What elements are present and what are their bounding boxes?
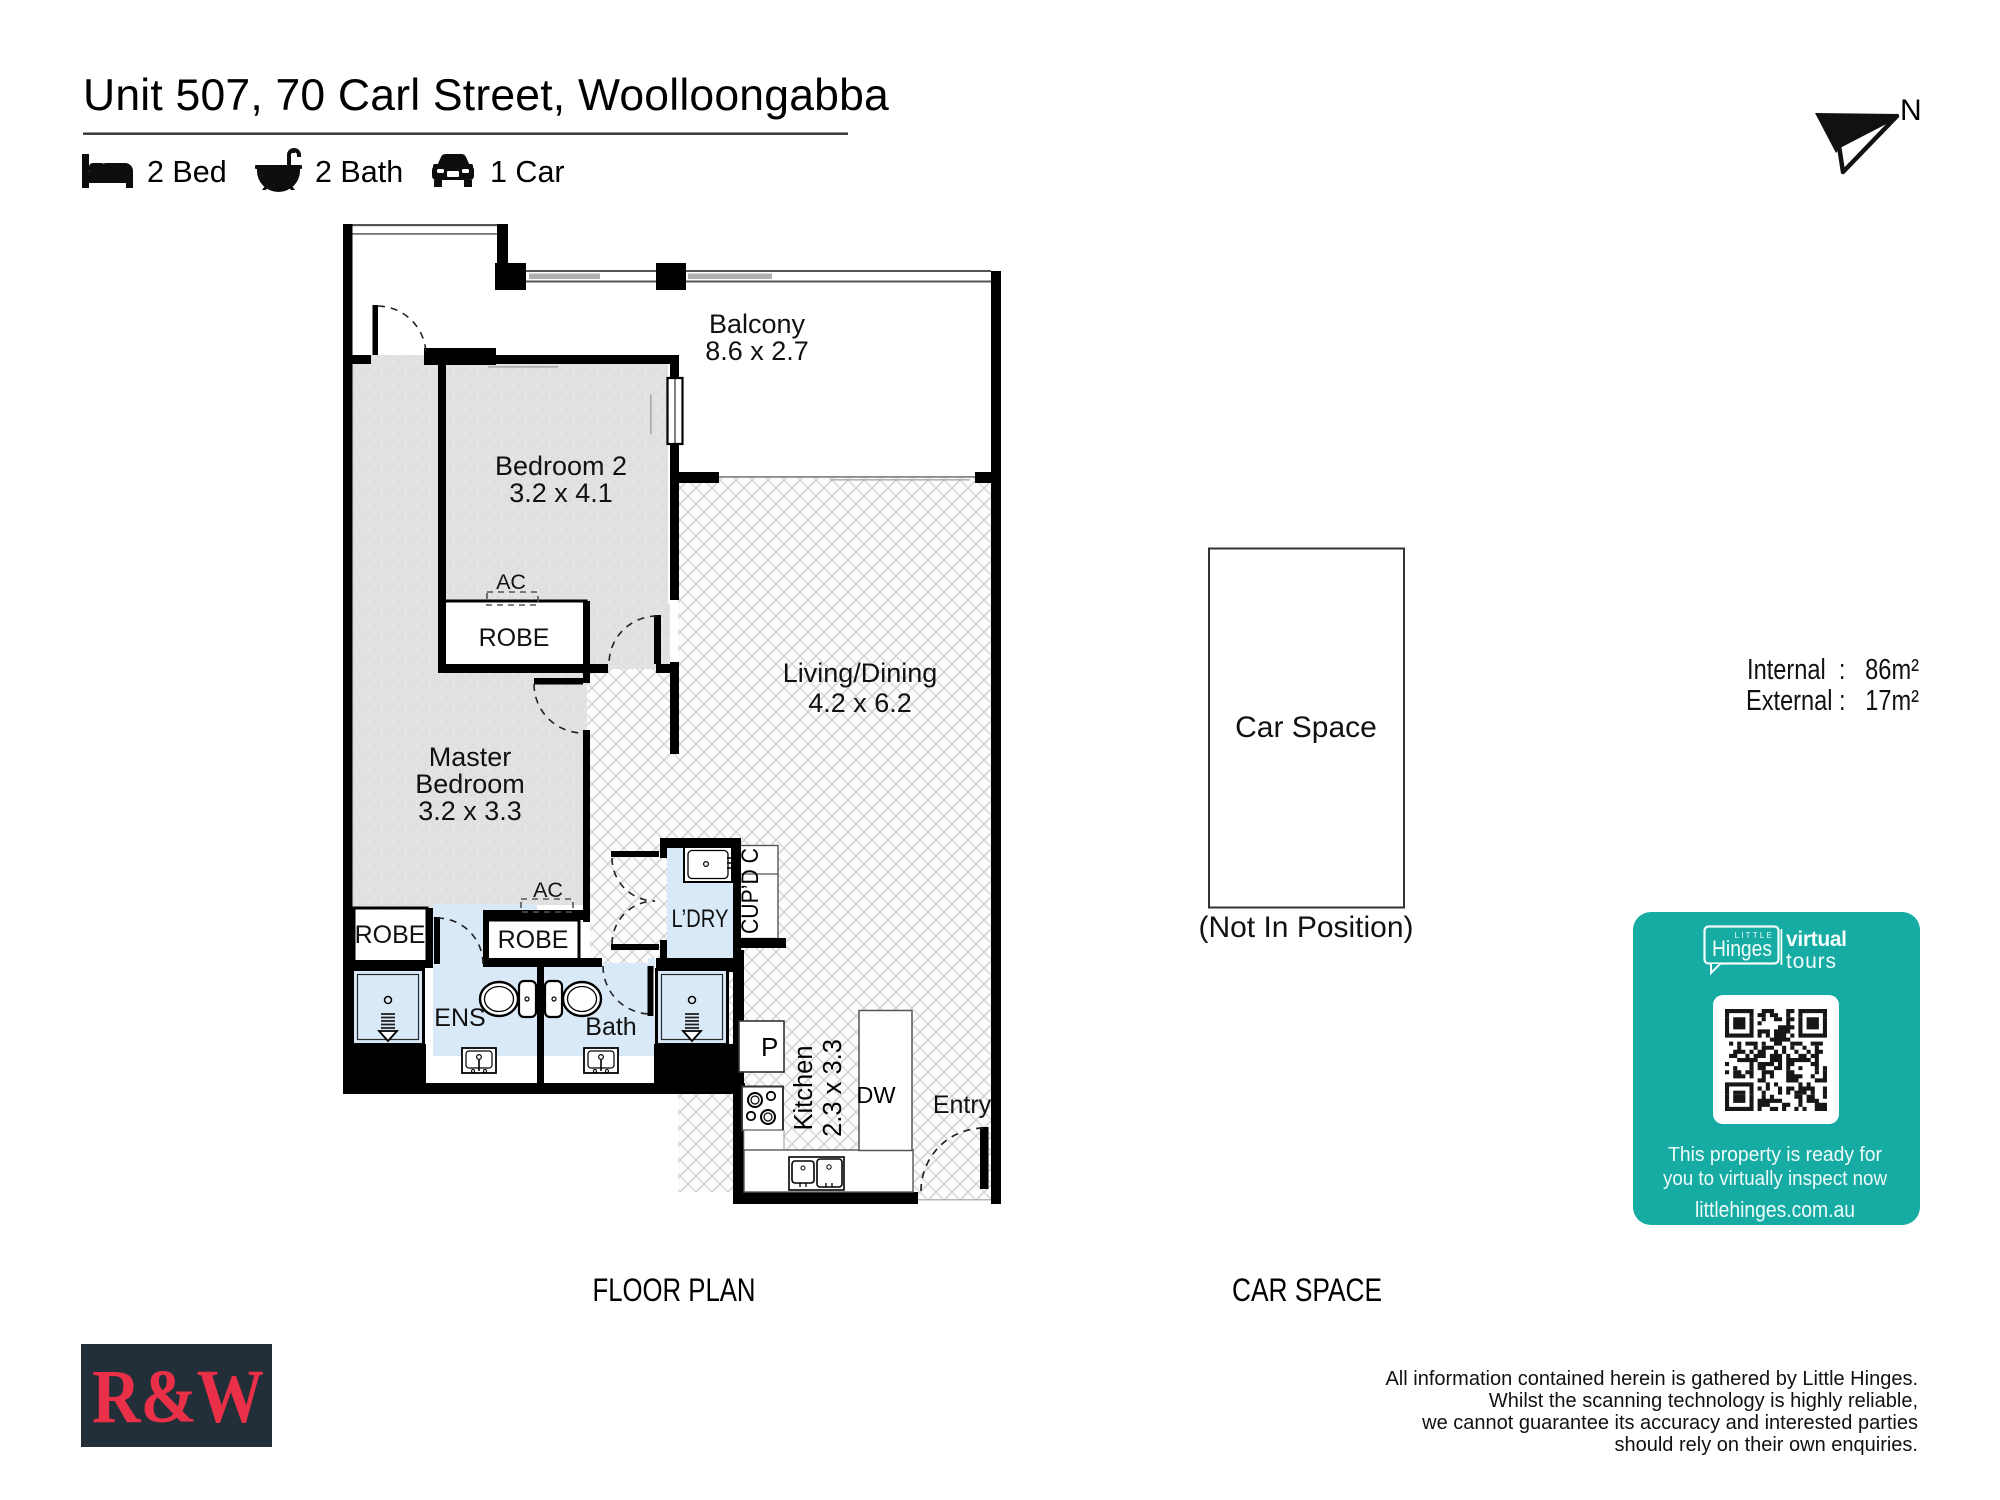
svg-text:ROBE: ROBE [498, 926, 569, 954]
svg-text:3.2 x 4.1: 3.2 x 4.1 [509, 478, 613, 508]
svg-text:All information contained here: All information contained herein is gath… [1385, 1368, 1918, 1390]
svg-text:CAR SPACE: CAR SPACE [1232, 1272, 1382, 1308]
svg-text:Bath: Bath [585, 1013, 636, 1041]
svg-text:ENS: ENS [434, 1004, 485, 1032]
svg-text:2 Bed: 2 Bed [147, 155, 227, 189]
svg-text:tours: tours [1786, 950, 1836, 973]
svg-text:Bedroom: Bedroom [415, 769, 525, 799]
svg-text:4.2 x 6.2: 4.2 x 6.2 [808, 688, 912, 718]
svg-text:LITTLE: LITTLE [1735, 931, 1774, 940]
svg-text:CUP’D C: CUP’D C [737, 848, 764, 934]
svg-text:This property is ready for: This property is ready for [1668, 1143, 1882, 1166]
svg-text:(Not In Position): (Not In Position) [1198, 911, 1413, 944]
svg-text:Whilst the scanning technology: Whilst the scanning technology is highly… [1489, 1390, 1918, 1412]
svg-text:littlehinges.com.au: littlehinges.com.au [1695, 1197, 1855, 1222]
svg-text:Internal : 86m²: Internal : 86m² [1747, 654, 1919, 686]
svg-text:Bedroom 2: Bedroom 2 [495, 451, 627, 481]
svg-text:N: N [1900, 94, 1922, 127]
svg-text:8.6 x 2.7: 8.6 x 2.7 [705, 336, 809, 366]
svg-text:2 Bath: 2 Bath [315, 155, 403, 189]
svg-text:L’DRY: L’DRY [672, 905, 729, 933]
svg-text:2.3 x 3.3: 2.3 x 3.3 [819, 1039, 847, 1137]
svg-text:DW: DW [856, 1082, 896, 1108]
svg-text:Car Space: Car Space [1235, 711, 1377, 744]
svg-text:FLOOR PLAN: FLOOR PLAN [593, 1272, 756, 1308]
svg-text:AC: AC [496, 570, 526, 594]
svg-text:Balcony: Balcony [709, 309, 806, 339]
svg-text:should rely on their own enqui: should rely on their own enquiries. [1614, 1434, 1918, 1456]
svg-text:3.2 x 3.3: 3.2 x 3.3 [418, 796, 522, 826]
svg-text:Living/Dining: Living/Dining [783, 658, 938, 688]
svg-text:Master: Master [429, 742, 512, 772]
svg-text:you to virtually inspect now: you to virtually inspect now [1663, 1167, 1887, 1190]
svg-text:we cannot guarantee its accura: we cannot guarantee its accuracy and int… [1421, 1412, 1918, 1434]
svg-text:1 Car: 1 Car [490, 155, 565, 189]
svg-text:virtual: virtual [1786, 928, 1847, 951]
svg-text:Entry: Entry [933, 1091, 992, 1119]
svg-text:Unit 507, 70 Carl Street, Wool: Unit 507, 70 Carl Street, Woolloongabba [83, 71, 889, 120]
svg-text:External : 17m²: External : 17m² [1746, 685, 1919, 717]
svg-text:Kitchen: Kitchen [790, 1045, 818, 1130]
svg-text:ROBE: ROBE [479, 624, 550, 652]
svg-text:ROBE: ROBE [355, 921, 426, 949]
svg-text:R&W: R&W [92, 1355, 264, 1439]
svg-text:P: P [761, 1032, 778, 1062]
